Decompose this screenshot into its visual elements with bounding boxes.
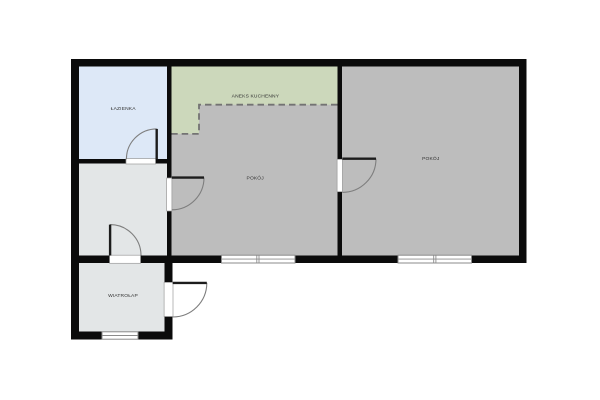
svg-text:POKÓJ: POKÓJ — [422, 155, 440, 162]
svg-text:WIATROŁAP: WIATROŁAP — [108, 293, 138, 299]
svg-text:ANEKS KUCHENNY: ANEKS KUCHENNY — [232, 93, 280, 99]
svg-text:POKÓJ: POKÓJ — [247, 175, 265, 182]
svg-text:ŁAZIENKA: ŁAZIENKA — [111, 106, 136, 112]
